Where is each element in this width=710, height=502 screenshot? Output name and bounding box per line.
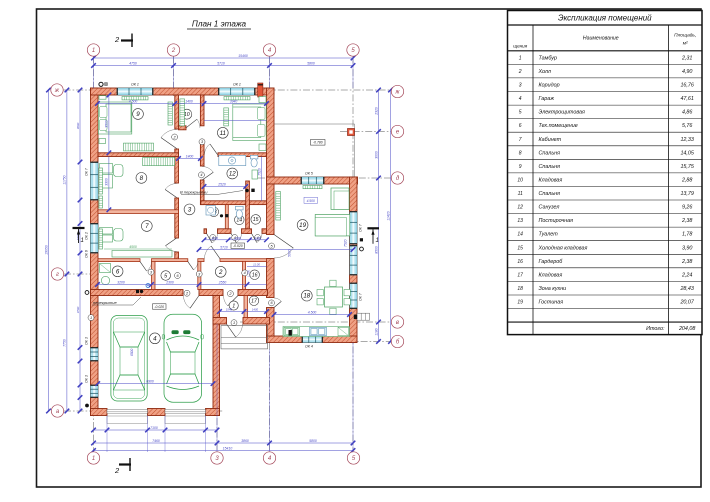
- svg-text:2: 2: [114, 466, 120, 475]
- svg-text:18: 18: [517, 286, 523, 292]
- svg-text:Тамбур: Тамбур: [539, 55, 557, 61]
- svg-text:15460: 15460: [238, 54, 248, 58]
- svg-text:16: 16: [517, 259, 523, 265]
- svg-text:1400: 1400: [186, 155, 194, 159]
- svg-text:5800: 5800: [309, 439, 317, 443]
- svg-text:1: 1: [92, 48, 95, 54]
- svg-text:2,88: 2,88: [681, 178, 693, 184]
- svg-text:8: 8: [140, 175, 144, 182]
- svg-text:1.700: 1.700: [247, 270, 251, 277]
- svg-text:В перекрытии: В перекрытии: [180, 189, 208, 194]
- svg-text:Тех.помещение: Тех.помещение: [539, 123, 578, 129]
- svg-text:ОК 7: ОК 7: [84, 167, 88, 176]
- svg-text:4,90: 4,90: [682, 69, 693, 75]
- svg-text:3: 3: [519, 83, 522, 89]
- svg-text:ОК 3: ОК 3: [84, 375, 88, 383]
- svg-text:4750: 4750: [129, 62, 137, 66]
- svg-text:1400: 1400: [252, 308, 259, 312]
- svg-text:ОК 4: ОК 4: [305, 345, 313, 349]
- svg-text:3940: 3940: [230, 100, 238, 104]
- svg-text:7520: 7520: [343, 239, 347, 247]
- svg-text:Экспликация помещений: Экспликация помещений: [558, 14, 652, 23]
- svg-text:6: 6: [116, 268, 120, 275]
- svg-text:Туалет: Туалет: [539, 232, 559, 238]
- svg-text:3860: 3860: [241, 439, 249, 443]
- svg-text:Спальня: Спальня: [539, 191, 561, 197]
- svg-text:ОК 6: ОК 6: [84, 250, 88, 258]
- svg-text:ОК 2: ОК 2: [84, 232, 88, 240]
- svg-text:6: 6: [519, 123, 522, 129]
- svg-text:9: 9: [519, 164, 522, 170]
- svg-text:7460: 7460: [152, 439, 160, 443]
- svg-text:м²: м²: [683, 41, 688, 47]
- svg-text:Коридор: Коридор: [539, 83, 560, 89]
- svg-text:2320: 2320: [374, 107, 378, 116]
- svg-text:19: 19: [299, 222, 306, 229]
- svg-text:Санузел: Санузел: [539, 205, 560, 211]
- svg-text:Постирочная: Постирочная: [539, 218, 574, 224]
- svg-text:Площадь,: Площадь,: [674, 33, 696, 39]
- svg-text:ОК 1: ОК 1: [131, 83, 139, 87]
- svg-text:1: 1: [81, 238, 84, 244]
- svg-text:19050: 19050: [44, 245, 48, 255]
- svg-text:14: 14: [517, 232, 523, 238]
- svg-text:14: 14: [236, 218, 242, 224]
- svg-text:4: 4: [153, 335, 157, 342]
- svg-text:6900: 6900: [146, 380, 154, 384]
- svg-text:9: 9: [136, 111, 140, 118]
- svg-text:ж: ж: [54, 88, 60, 94]
- svg-text:2300: 2300: [165, 281, 174, 285]
- svg-text:2: 2: [171, 48, 176, 54]
- svg-text:3000: 3000: [374, 151, 378, 159]
- svg-text:47,61: 47,61: [680, 96, 694, 102]
- svg-text:6500: 6500: [130, 348, 134, 356]
- svg-text:3700: 3700: [76, 306, 80, 313]
- svg-text:8500: 8500: [374, 246, 378, 254]
- svg-text:-0.020: -0.020: [233, 244, 243, 248]
- svg-text:4.500: 4.500: [307, 199, 315, 203]
- svg-text:1400: 1400: [255, 236, 262, 240]
- svg-text:3300: 3300: [105, 178, 109, 186]
- svg-text:18: 18: [303, 293, 310, 300]
- svg-text:2,38: 2,38: [681, 218, 693, 224]
- svg-text:Зона кухни: Зона кухни: [539, 286, 567, 292]
- svg-text:7: 7: [519, 137, 522, 143]
- svg-text:1: 1: [376, 238, 379, 244]
- svg-text:1540: 1540: [212, 236, 219, 240]
- svg-text:20,07: 20,07: [679, 300, 694, 306]
- svg-text:2: 2: [114, 35, 120, 44]
- svg-text:в: в: [396, 320, 399, 326]
- svg-text:2520: 2520: [217, 183, 226, 187]
- svg-text:2060: 2060: [234, 236, 242, 240]
- svg-text:11.00: 11.00: [253, 263, 260, 267]
- svg-text:2: 2: [218, 269, 223, 276]
- svg-text:3200: 3200: [117, 281, 125, 285]
- svg-text:4500: 4500: [129, 245, 137, 249]
- svg-text:7100: 7100: [150, 426, 158, 430]
- svg-text:16: 16: [252, 273, 258, 279]
- svg-text:щения: щения: [513, 44, 528, 49]
- svg-text:15410: 15410: [223, 447, 233, 451]
- svg-text:5000: 5000: [288, 249, 292, 257]
- svg-text:Итого:: Итого:: [646, 326, 665, 332]
- svg-text:3,90: 3,90: [682, 245, 693, 251]
- svg-text:-0.020: -0.020: [154, 305, 164, 309]
- svg-text:1180: 1180: [374, 328, 378, 335]
- svg-text:5800: 5800: [307, 62, 315, 66]
- svg-text:11: 11: [220, 130, 226, 137]
- svg-text:5: 5: [519, 110, 522, 116]
- svg-text:2,24: 2,24: [681, 272, 693, 278]
- svg-text:9,26: 9,26: [682, 205, 693, 211]
- svg-text:2: 2: [518, 69, 522, 75]
- svg-text:Холодная кладовая: Холодная кладовая: [538, 245, 588, 251]
- svg-text:4.500: 4.500: [308, 311, 317, 315]
- svg-text:4,86: 4,86: [682, 110, 693, 116]
- svg-text:1400: 1400: [185, 100, 193, 104]
- svg-text:17: 17: [517, 272, 523, 278]
- svg-text:1540: 1540: [226, 308, 233, 312]
- svg-text:г: г: [56, 272, 59, 278]
- svg-text:-0.780: -0.780: [313, 141, 323, 145]
- svg-text:Гардероб: Гардероб: [539, 259, 564, 265]
- svg-text:Гостиная: Гостиная: [539, 300, 564, 306]
- svg-text:1,78: 1,78: [682, 232, 693, 238]
- svg-text:ж: ж: [394, 90, 400, 96]
- svg-text:12,33: 12,33: [680, 137, 694, 143]
- svg-text:4.500: 4.500: [129, 100, 138, 104]
- svg-text:Наименование: Наименование: [583, 36, 619, 42]
- svg-text:Электрощитовая: Электрощитовая: [539, 110, 586, 116]
- svg-text:15: 15: [253, 217, 259, 223]
- svg-text:5710: 5710: [217, 62, 225, 66]
- svg-text:2,31: 2,31: [681, 55, 693, 61]
- svg-text:Гараж: Гараж: [539, 96, 555, 102]
- svg-text:ОК 7: ОК 7: [359, 292, 363, 301]
- svg-text:15,75: 15,75: [680, 164, 694, 170]
- svg-text:19: 19: [517, 300, 523, 306]
- svg-text:28,43: 28,43: [679, 286, 694, 292]
- svg-text:1: 1: [232, 303, 235, 309]
- svg-text:4: 4: [244, 271, 246, 275]
- svg-text:1: 1: [519, 55, 522, 61]
- svg-text:10: 10: [517, 178, 523, 184]
- svg-text:11: 11: [518, 191, 523, 197]
- svg-text:ОК 5: ОК 5: [305, 172, 313, 176]
- svg-text:11750: 11750: [63, 175, 67, 184]
- svg-text:4: 4: [519, 96, 522, 102]
- svg-text:15: 15: [517, 245, 523, 251]
- svg-text:1: 1: [90, 316, 92, 320]
- svg-text:Спальня: Спальня: [539, 150, 561, 156]
- svg-text:14,05: 14,05: [680, 150, 694, 156]
- svg-text:13: 13: [517, 218, 523, 224]
- svg-text:Кладовая: Кладовая: [539, 272, 563, 278]
- svg-text:4: 4: [200, 173, 202, 177]
- svg-text:Спальня: Спальня: [539, 164, 561, 170]
- svg-text:7750: 7750: [63, 339, 67, 347]
- svg-text:12: 12: [517, 205, 523, 211]
- svg-text:1: 1: [92, 456, 95, 462]
- svg-text:11420: 11420: [386, 211, 390, 220]
- svg-text:16,76: 16,76: [680, 83, 694, 89]
- svg-text:Кабинет: Кабинет: [539, 137, 562, 143]
- svg-text:2550: 2550: [218, 281, 227, 285]
- svg-text:12: 12: [229, 171, 236, 178]
- svg-text:5710: 5710: [220, 246, 228, 250]
- svg-text:План 1 этажа: План 1 этажа: [192, 20, 247, 29]
- svg-text:7: 7: [145, 223, 149, 230]
- svg-text:2,38: 2,38: [681, 259, 693, 265]
- svg-text:8: 8: [519, 150, 522, 156]
- svg-text:ОК 3: ОК 3: [84, 337, 88, 345]
- svg-text:ОК 1: ОК 1: [233, 83, 241, 87]
- svg-text:Кладовая: Кладовая: [539, 178, 563, 184]
- svg-text:3: 3: [188, 207, 192, 214]
- svg-text:Холл: Холл: [538, 69, 551, 75]
- svg-text:перекрытие: перекрытие: [93, 300, 117, 305]
- svg-text:ОК 7: ОК 7: [359, 223, 363, 232]
- svg-text:1: 1: [233, 321, 235, 325]
- svg-text:13,79: 13,79: [680, 191, 694, 197]
- svg-text:7520: 7520: [257, 168, 261, 176]
- svg-text:3600: 3600: [76, 122, 80, 129]
- svg-text:3500: 3500: [105, 120, 109, 128]
- svg-text:204,08: 204,08: [678, 326, 696, 332]
- svg-text:5,76: 5,76: [682, 123, 693, 129]
